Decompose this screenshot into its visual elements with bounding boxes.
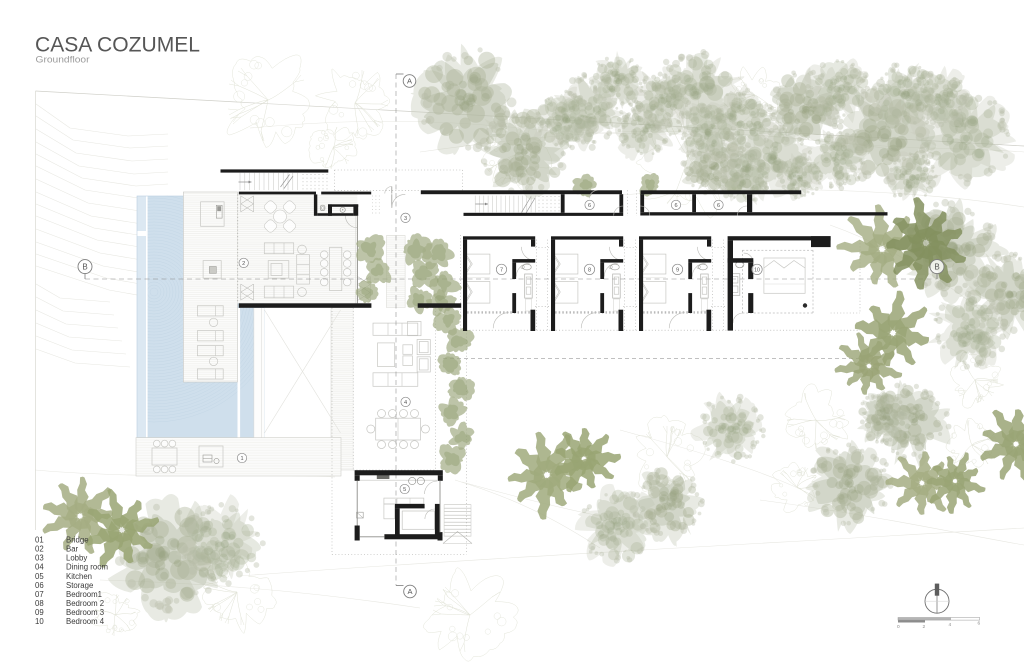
svg-text:02: 02	[35, 545, 44, 554]
svg-text:B: B	[82, 262, 87, 271]
svg-text:0: 0	[897, 624, 900, 630]
svg-text:3: 3	[404, 216, 407, 222]
svg-text:07: 07	[35, 590, 44, 599]
svg-text:6: 6	[978, 621, 981, 627]
svg-text:Dining room: Dining room	[66, 563, 108, 572]
svg-text:2: 2	[242, 261, 245, 267]
svg-text:08: 08	[35, 599, 44, 608]
svg-text:7: 7	[500, 267, 503, 273]
svg-text:10: 10	[754, 267, 760, 273]
svg-text:CASA COZUMEL: CASA COZUMEL	[35, 33, 200, 57]
svg-text:Lobby: Lobby	[66, 554, 87, 563]
svg-text:05: 05	[35, 572, 44, 581]
svg-text:5: 5	[403, 487, 406, 493]
svg-text:Bedroom 4: Bedroom 4	[66, 617, 105, 626]
svg-text:Storage: Storage	[66, 581, 93, 590]
svg-text:8: 8	[588, 267, 591, 273]
svg-text:4: 4	[404, 400, 407, 406]
svg-text:6: 6	[588, 203, 591, 209]
svg-text:Bedroom 2: Bedroom 2	[66, 599, 104, 608]
svg-text:Bridge: Bridge	[66, 536, 89, 545]
svg-text:Groundfloor: Groundfloor	[36, 55, 90, 65]
svg-text:Kitchen: Kitchen	[66, 572, 92, 581]
svg-text:Bedroom1: Bedroom1	[66, 590, 102, 599]
svg-text:2: 2	[923, 624, 926, 630]
svg-text:9: 9	[676, 267, 679, 273]
svg-text:10: 10	[35, 617, 44, 626]
svg-text:A: A	[407, 77, 412, 86]
svg-text:04: 04	[35, 563, 44, 572]
svg-text:6: 6	[674, 203, 677, 209]
svg-text:03: 03	[35, 554, 44, 563]
svg-text:06: 06	[35, 581, 44, 590]
svg-text:01: 01	[35, 536, 44, 545]
svg-text:6: 6	[717, 203, 720, 209]
svg-text:B: B	[934, 262, 939, 271]
svg-text:Bedroom 3: Bedroom 3	[66, 608, 104, 617]
svg-text:A: A	[407, 587, 412, 596]
svg-text:4: 4	[949, 622, 952, 628]
svg-text:1: 1	[240, 456, 243, 462]
svg-text:09: 09	[35, 608, 44, 617]
svg-text:Bar: Bar	[66, 545, 79, 554]
